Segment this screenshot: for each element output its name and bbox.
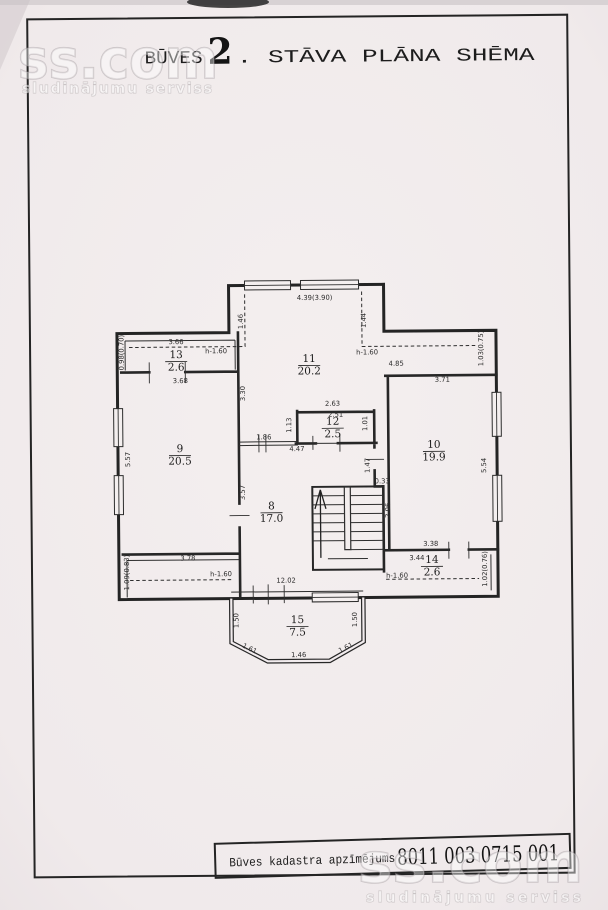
room-area: 20.5 (168, 455, 191, 467)
dim-label: 1.02(0.76) (481, 551, 489, 587)
dim-label: 3.71 (435, 376, 450, 384)
dim-label: 3.44 (409, 554, 424, 562)
room-number: 12 (326, 416, 339, 428)
dim-label: 1.03(0.75) (477, 330, 485, 366)
watermark-tagline: sludinājumu serviss (366, 890, 581, 906)
dim-label: 1.09(0.83) (123, 554, 131, 590)
dim-label: 1.46 (237, 314, 245, 329)
room-number: 9 (177, 443, 184, 455)
room-number: 10 (427, 439, 440, 451)
room-number: 13 (169, 349, 182, 361)
dim-label: 2.63 (325, 400, 340, 408)
dim-label: 1.47 (364, 458, 372, 473)
room-area: 20.2 (298, 365, 321, 377)
dim-label: 4.47 (289, 445, 304, 453)
dim-label: 1.44 (360, 313, 368, 328)
dim-label: 1.13 (285, 418, 293, 433)
dim-label: 3.68 (173, 377, 188, 385)
dim-label: 3.66 (168, 338, 183, 346)
watermark-brand: ss.com (358, 832, 583, 895)
dim-label: 1.86 (256, 433, 271, 441)
dim-label: h-1.60 (356, 348, 378, 356)
dim-label: h-1.60 (386, 572, 408, 580)
watermark-bottom-right: ss.com sludinājumu serviss (358, 832, 583, 906)
room-number: 11 (302, 353, 315, 365)
watermark-tagline: sludinājumu serviss (22, 81, 212, 97)
dim-label: 4.85 (389, 360, 404, 368)
room-number: 14 (425, 554, 439, 566)
dim-label: 2.06 (384, 503, 392, 518)
room-area: 19.9 (422, 451, 445, 463)
room-area: 2.6 (424, 566, 441, 578)
dim-label: 3.57 (239, 485, 247, 500)
room-number: 15 (291, 614, 304, 626)
scan-edge-top (0, 0, 608, 5)
paper-background (0, 0, 608, 910)
dim-label: 0.98(0.70) (117, 334, 125, 370)
dim-label: 3.38 (423, 540, 438, 548)
scanned-floorplan-page: BŪVES 2 . STĀVA PLĀNA SHĒMA (0, 0, 608, 910)
dim-label: 5.54 (480, 458, 488, 473)
scanned-page: BŪVES 2 . STĀVA PLĀNA SHĒMA (0, 0, 608, 910)
dim-label: 12.02 (276, 577, 296, 585)
dim-label: 0.33 (375, 477, 390, 485)
dim-label: 3.78 (180, 554, 195, 562)
dim-label: h-1.60 (210, 570, 232, 578)
watermark-top-left: ss.com sludinājumu serviss (18, 28, 218, 97)
dim-label: h-1.60 (205, 347, 227, 355)
room-area: 2.6 (168, 362, 185, 374)
dim-label: 1.50 (351, 612, 359, 627)
title-suffix: . STĀVA PLĀNA SHĒMA (236, 45, 534, 69)
room-area: 2.5 (324, 428, 341, 440)
dim-label: 1.50 (232, 613, 240, 628)
dim-label: 4.39(3.90) (297, 294, 333, 302)
dim-label: 1.01 (361, 416, 369, 431)
room-number: 8 (268, 500, 275, 512)
dim-label: 5.57 (124, 452, 132, 467)
room-area: 7.5 (289, 626, 306, 638)
dim-label: 1.46 (291, 651, 306, 659)
dim-label: 3.30 (239, 386, 247, 401)
room-area: 17.0 (260, 513, 283, 525)
